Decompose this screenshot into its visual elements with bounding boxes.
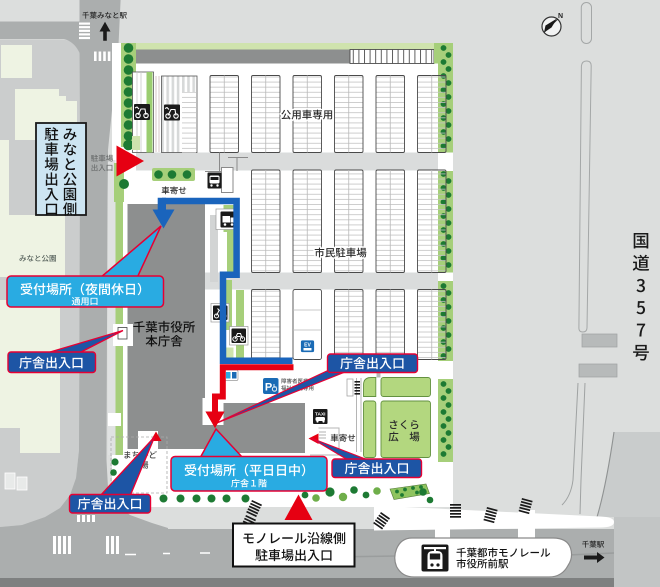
svg-text:側: 側 [63, 199, 78, 220]
svg-text:庁舎出入口: 庁舎出入口 [19, 353, 84, 372]
svg-text:3: 3 [636, 273, 646, 298]
svg-text:庁舎出入口: 庁舎出入口 [77, 494, 142, 513]
svg-text:市民駐車場: 市民駐車場 [314, 246, 367, 261]
svg-text:車寄せ: 車寄せ [161, 185, 187, 197]
svg-text:国: 国 [632, 228, 650, 253]
svg-text:庁舎出入口: 庁舎出入口 [344, 458, 409, 477]
svg-text:P: P [265, 379, 272, 395]
svg-text:N: N [558, 11, 563, 21]
svg-text:庁舎１階: 庁舎１階 [231, 477, 267, 490]
svg-text:市役所前駅: 市役所前駅 [456, 557, 509, 572]
svg-text:車寄せ: 車寄せ [330, 432, 356, 444]
svg-text:5: 5 [636, 295, 646, 320]
svg-text:号: 号 [632, 340, 650, 365]
svg-text:広 場: 広 場 [388, 430, 420, 445]
svg-text:口: 口 [44, 199, 59, 220]
svg-text:本庁舎: 本庁舎 [145, 331, 183, 350]
svg-text:千葉駅: 千葉駅 [582, 539, 605, 550]
svg-text:みなと公園: みなと公園 [19, 253, 57, 264]
svg-text:道: 道 [632, 250, 650, 275]
svg-text:TAXI: TAXI [315, 411, 326, 418]
svg-text:EV: EV [304, 342, 311, 349]
svg-text:庁舎出入口: 庁舎出入口 [340, 353, 405, 372]
svg-text:出入口: 出入口 [91, 163, 114, 174]
svg-text:通用口: 通用口 [71, 295, 98, 308]
svg-text:公用車専用: 公用車専用 [281, 108, 334, 123]
svg-text:千葉みなと駅: 千葉みなと駅 [82, 10, 127, 21]
svg-text:駐車場出入口: 駐車場出入口 [255, 545, 333, 564]
svg-text:7: 7 [636, 318, 646, 343]
